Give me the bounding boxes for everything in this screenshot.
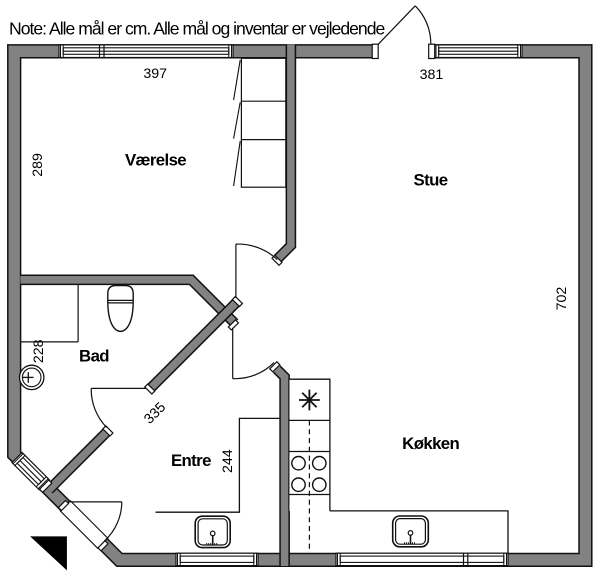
svg-text:Stue: Stue: [414, 170, 448, 189]
svg-text:Entre: Entre: [171, 451, 211, 470]
svg-text:397: 397: [143, 66, 167, 82]
svg-text:244: 244: [220, 449, 236, 473]
svg-text:Bad: Bad: [79, 347, 109, 366]
svg-text:289: 289: [30, 153, 46, 177]
svg-text:Køkken: Køkken: [402, 434, 459, 453]
svg-text:381: 381: [420, 67, 444, 83]
svg-text:Note: Alle mål er cm. Alle mål: Note: Alle mål er cm. Alle mål og invent…: [9, 18, 384, 38]
svg-text:702: 702: [554, 287, 570, 311]
svg-text:228: 228: [31, 339, 47, 363]
svg-text:Værelse: Værelse: [125, 150, 186, 169]
